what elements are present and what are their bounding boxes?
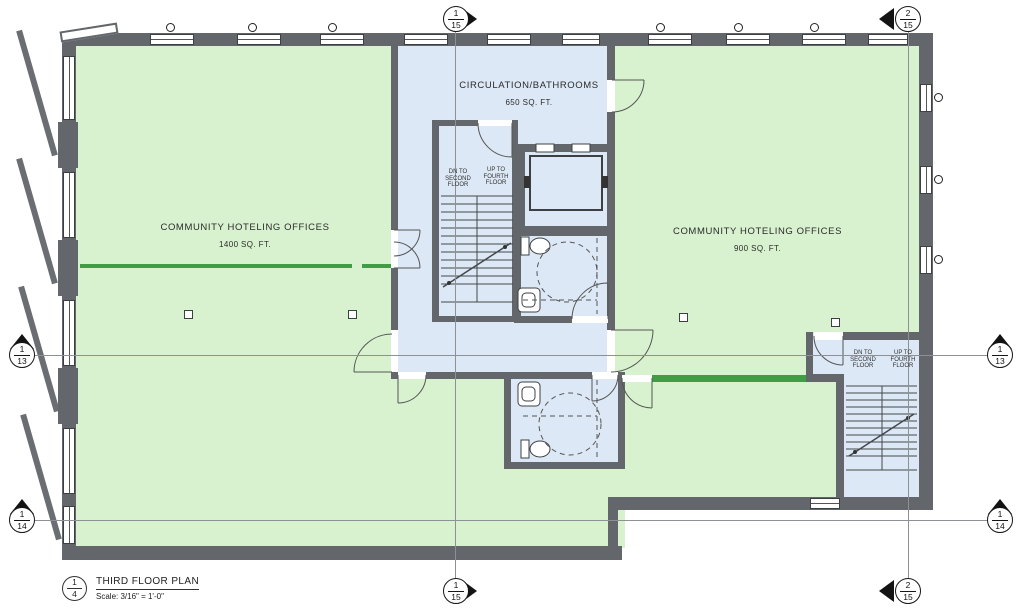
door-arc <box>592 375 618 401</box>
room-label-circulation: CIRCULATION/BATHROOMS 650 SQ. FT. <box>420 80 638 107</box>
stair-label-down: DN TO SECOND FLOOR <box>846 350 880 370</box>
door-arc <box>398 375 426 403</box>
room-label-left-office: COMMUNITY HOTELING OFFICES 1400 SQ. FT. <box>125 222 365 249</box>
detail-number: 1 <box>67 577 82 589</box>
grid-bubble-1-13-right: 1 13 <box>987 342 1013 368</box>
elevator <box>524 144 608 210</box>
grid-sheet: 14 <box>992 521 1008 532</box>
door-arc <box>622 378 652 408</box>
toilet <box>521 237 550 255</box>
sink <box>518 382 540 406</box>
grid-bubble-2-15-bottom: 2 15 <box>895 578 921 604</box>
center-stair <box>441 196 513 302</box>
section-marker-icon <box>879 580 894 602</box>
grid-number: 1 <box>992 509 1008 521</box>
grid-number: 2 <box>900 8 916 20</box>
grid-bubble-1-14-left: 1 14 <box>9 507 35 533</box>
stair-label-up: UP TO FOURTH FLOOR <box>478 167 514 187</box>
drawing-title: THIRD FLOOR PLAN <box>96 576 199 590</box>
sheet-number: 4 <box>67 589 82 600</box>
stair-label-up: UP TO FOURTH FLOOR <box>886 350 920 370</box>
grid-number: 1 <box>448 580 464 592</box>
grid-number: 1 <box>448 8 464 20</box>
stair-label-down: DN TO SECOND FLOOR <box>440 169 476 189</box>
room-name: CIRCULATION/BATHROOMS <box>420 80 638 91</box>
room-name: COMMUNITY HOTELING OFFICES <box>125 222 365 233</box>
title-text: THIRD FLOOR PLAN Scale: 3/16" = 1'-0" <box>96 576 199 601</box>
grid-number: 1 <box>14 344 30 356</box>
grid-sheet: 13 <box>992 356 1008 367</box>
grid-number: 1 <box>992 344 1008 356</box>
room-area: 900 SQ. FT. <box>640 244 875 253</box>
grid-sheet: 15 <box>448 20 464 31</box>
grid-sheet: 15 <box>900 20 916 31</box>
turning-clearance <box>523 238 601 458</box>
grid-sheet: 14 <box>14 521 30 532</box>
floor-plan-sheet: COMMUNITY HOTELING OFFICES 1400 SQ. FT. … <box>0 0 1024 611</box>
grid-bubble-1-14-right: 1 14 <box>987 507 1013 533</box>
door-arc <box>394 230 420 268</box>
grid-bubble-1-15: 1 15 <box>443 6 469 32</box>
grid-sheet: 15 <box>448 592 464 603</box>
section-marker-icon <box>879 8 894 30</box>
detail-tag: 1 4 <box>62 576 87 601</box>
grid-line-2-15 <box>908 14 909 596</box>
room-label-right-office: COMMUNITY HOTELING OFFICES 900 SQ. FT. <box>640 226 875 253</box>
room-area: 650 SQ. FT. <box>420 98 638 107</box>
room-name: COMMUNITY HOTELING OFFICES <box>640 226 875 237</box>
grid-line-1-14 <box>14 520 1010 521</box>
grid-bubble-1-15-bottom: 1 15 <box>443 578 469 604</box>
title-block: 1 4 THIRD FLOOR PLAN Scale: 3/16" = 1'-0… <box>62 576 199 601</box>
door-arc <box>478 123 512 157</box>
grid-bubble-1-13-left: 1 13 <box>9 342 35 368</box>
grid-number: 1 <box>14 509 30 521</box>
grid-bubble-2-15: 2 15 <box>895 6 921 32</box>
right-stair <box>846 386 917 470</box>
door-arc <box>611 330 653 372</box>
door-arc <box>572 283 608 319</box>
grid-sheet: 15 <box>900 592 916 603</box>
grid-number: 2 <box>900 580 916 592</box>
drawing-scale: Scale: 3/16" = 1'-0" <box>96 592 199 601</box>
room-area: 1400 SQ. FT. <box>125 240 365 249</box>
door-arc <box>354 334 392 372</box>
grid-sheet: 13 <box>14 356 30 367</box>
door-arc <box>814 336 843 365</box>
